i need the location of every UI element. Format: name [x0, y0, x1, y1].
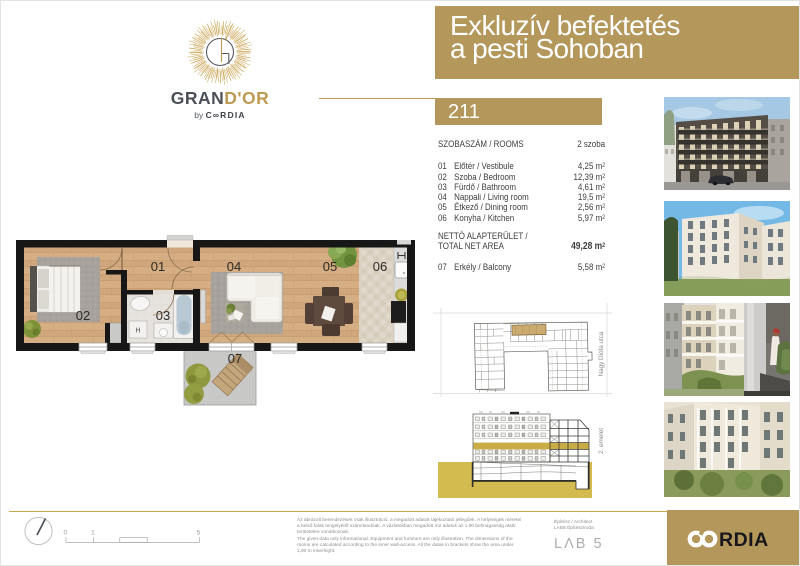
svg-text:H: H	[135, 328, 140, 335]
svg-text:04: 04	[227, 259, 241, 274]
svg-text:RDIA: RDIA	[719, 529, 769, 551]
svg-text:02: 02	[76, 308, 90, 323]
svg-text:03: 03	[156, 308, 170, 323]
svg-text:1: 1	[91, 530, 95, 537]
svg-text:01: 01	[151, 259, 165, 274]
svg-text:07: 07	[228, 351, 242, 366]
svg-text:5: 5	[197, 530, 201, 537]
svg-text:0: 0	[64, 530, 68, 537]
svg-text:05: 05	[323, 259, 337, 274]
svg-text:2. emelet: 2. emelet	[598, 428, 605, 454]
svg-text:06: 06	[373, 259, 387, 274]
svg-text:Nagy Diófa utca: Nagy Diófa utca	[598, 331, 605, 376]
